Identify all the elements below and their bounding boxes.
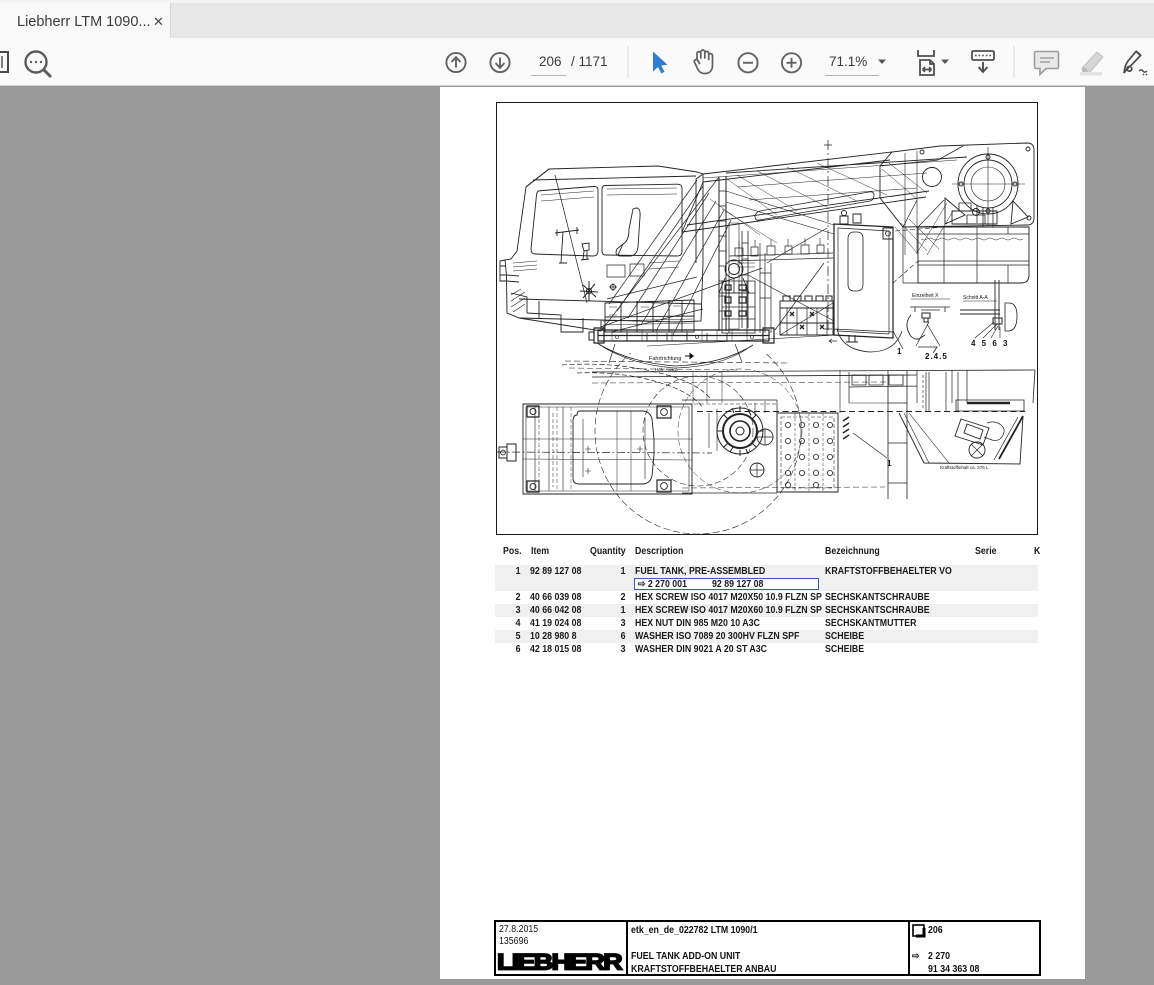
- svg-text:Höh. Ausgl.: Höh. Ausgl.: [655, 367, 678, 372]
- svg-text:Fahrtrichtung: Fahrtrichtung: [649, 356, 681, 362]
- svg-text:4 5 6 3: 4 5 6 3: [971, 339, 1009, 348]
- svg-text:2.4.5: 2.4.5: [925, 352, 948, 361]
- svg-text:1: 1: [887, 459, 892, 468]
- svg-text:Schnitt A-A: Schnitt A-A: [963, 295, 988, 301]
- svg-text:Kraftstoffinhalt ca. 375 L: Kraftstoffinhalt ca. 375 L: [940, 465, 989, 470]
- svg-text:1: 1: [897, 347, 902, 356]
- svg-text:Einzelheit X: Einzelheit X: [912, 293, 939, 299]
